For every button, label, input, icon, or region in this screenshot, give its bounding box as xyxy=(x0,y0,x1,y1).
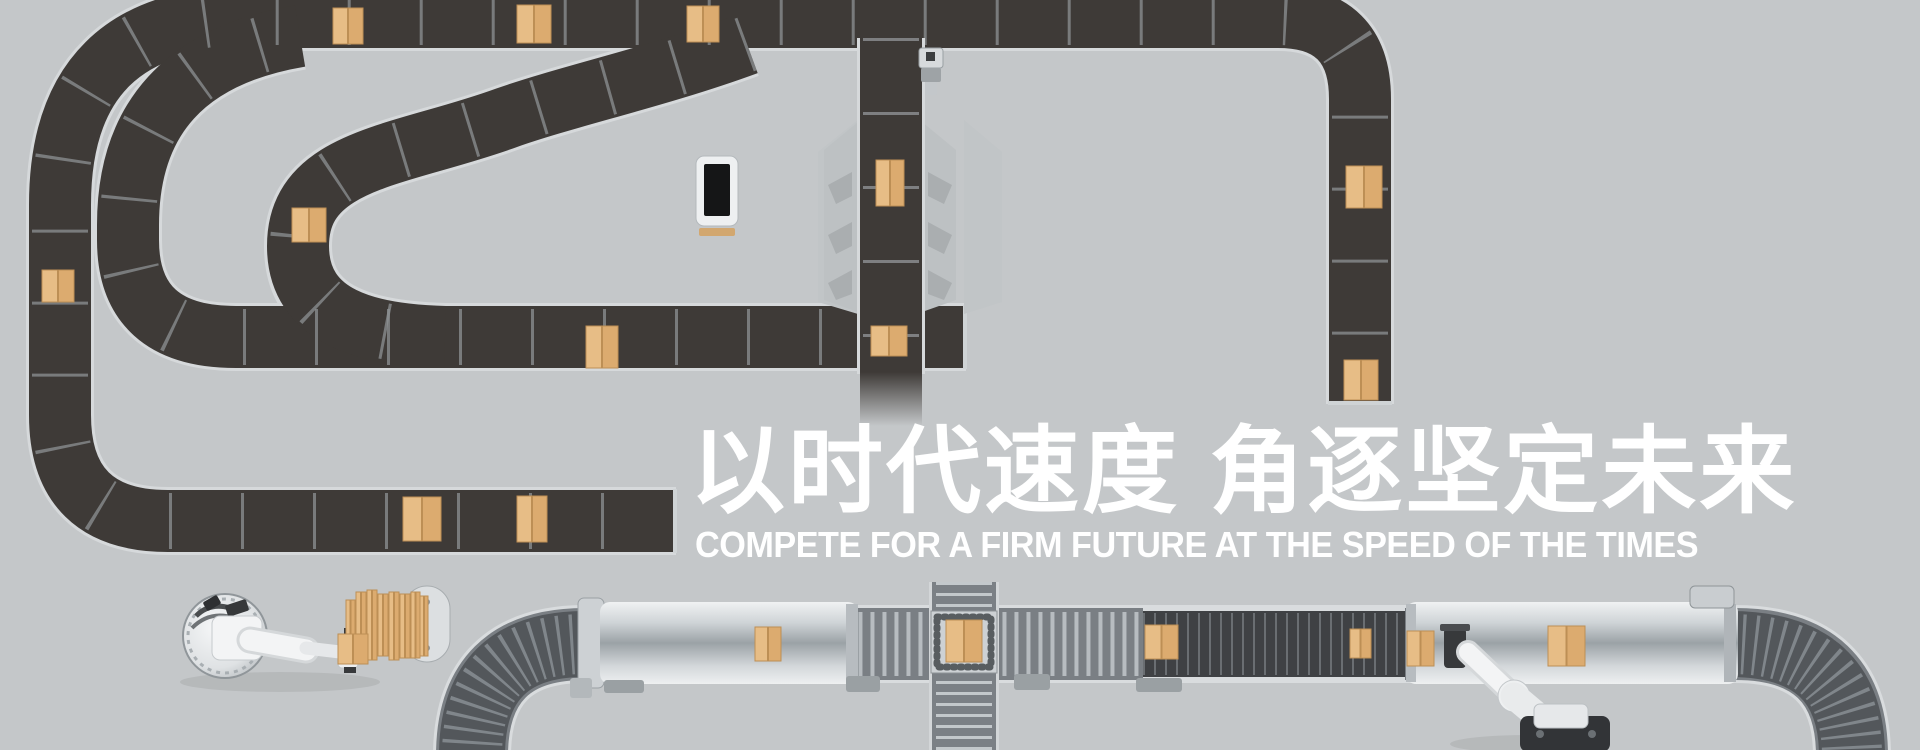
cardboard-box xyxy=(876,160,904,206)
cardboard-box xyxy=(1145,625,1178,659)
cardboard-box xyxy=(1346,166,1382,208)
cardboard-box xyxy=(389,592,399,660)
cardboard-box xyxy=(378,594,388,656)
tower-panel-right-outer xyxy=(964,120,1002,314)
cardboard-box xyxy=(1350,629,1371,658)
pallet-station xyxy=(338,586,450,664)
cardboard-box xyxy=(1548,626,1585,666)
cardboard-box xyxy=(586,326,618,368)
hero-banner: 以时代速度 角逐坚定未来 COMPETE FOR A FIRM FUTURE A… xyxy=(0,0,1920,750)
cardboard-box xyxy=(42,270,74,302)
metal-roller-line xyxy=(472,582,1852,750)
belt-end-cap xyxy=(1328,401,1392,405)
cardboard-box xyxy=(333,8,363,44)
tower-belt-fadeout xyxy=(860,372,922,426)
control-monitor xyxy=(696,156,738,236)
transfer-junction xyxy=(931,582,997,750)
cardboard-box xyxy=(687,6,719,42)
cardboard-box xyxy=(946,620,982,662)
cover-knob xyxy=(1690,586,1734,608)
cardboard-box xyxy=(420,596,428,656)
cardboard-box xyxy=(517,5,551,43)
cardboard-box xyxy=(1344,360,1378,400)
conveyor-scene xyxy=(0,0,1920,750)
headline-chinese: 以时代速度 角逐坚定未来 xyxy=(690,422,1797,522)
palletizing-robot-left xyxy=(180,586,450,692)
belt-end-cap xyxy=(673,489,677,553)
pallet-stacked-boxes xyxy=(338,590,428,664)
monitor-screen xyxy=(704,164,730,216)
cardboard-box xyxy=(755,627,781,661)
cardboard-box xyxy=(403,497,441,541)
cardboard-box xyxy=(292,208,326,242)
cardboard-box xyxy=(871,326,907,356)
headline-english: COMPETE FOR A FIRM FUTURE AT THE SPEED O… xyxy=(695,527,1698,563)
cardboard-box xyxy=(400,594,410,658)
cardboard-box xyxy=(411,592,420,658)
cardboard-box xyxy=(1407,631,1434,666)
silver-cover-left xyxy=(578,598,858,688)
cardboard-box xyxy=(517,496,547,542)
belt-end-cap xyxy=(963,305,967,369)
cardboard-box xyxy=(338,634,368,664)
monitor-base-strip xyxy=(699,228,735,236)
